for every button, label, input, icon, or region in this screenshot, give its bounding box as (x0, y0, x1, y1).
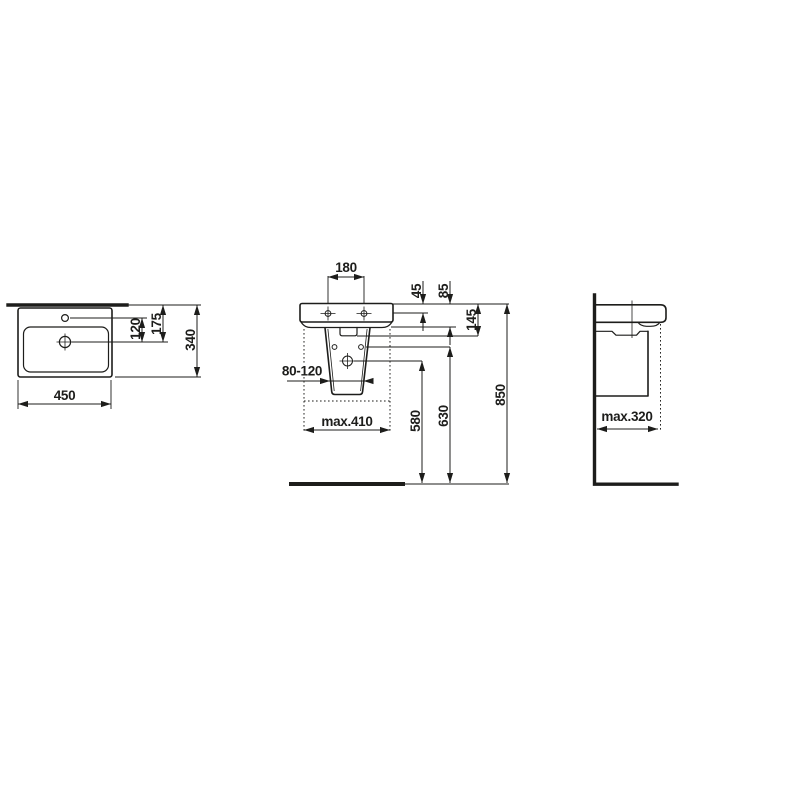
dim-label-175: 175 (149, 312, 164, 334)
dim-label-180: 180 (335, 260, 357, 275)
pedestal-hole-left (332, 345, 337, 350)
dim-label-580: 580 (408, 410, 423, 432)
dim-label-850: 850 (493, 384, 508, 406)
fixing-hole-left-cross (321, 307, 336, 321)
fixing-hole-right (357, 307, 372, 321)
dim-label-120: 120 (128, 318, 143, 340)
bowl-profile (596, 331, 648, 396)
basin-front-outline (300, 304, 393, 323)
dim-label-450: 450 (54, 388, 76, 403)
dim-label-45: 45 (409, 283, 424, 298)
dim-label-145: 145 (464, 308, 479, 330)
overflow-notch (340, 328, 357, 336)
wall-and-floor-line (595, 295, 678, 484)
pedestal-hole-right (359, 345, 364, 350)
basin-underside (301, 322, 392, 328)
overflow-channel-profile (596, 331, 648, 335)
drain-target-cross (340, 353, 356, 369)
drain-target (340, 353, 356, 369)
technical-drawing-page: 120 175 340 450 (0, 0, 800, 800)
dim-label-max410: max.410 (321, 414, 372, 429)
fixing-hole-right-cross (357, 307, 372, 321)
dim-label-630: 630 (436, 405, 451, 427)
dim-label-340: 340 (183, 329, 198, 351)
dim-label-max320: max.320 (601, 409, 652, 424)
front-view-extension-lines (328, 276, 509, 484)
front-view: 180 45 85 145 80-120 max.410 580 630 850 (281, 260, 509, 484)
dim-label-80-120: 80-120 (282, 364, 322, 379)
basin-bowl-plan (24, 327, 109, 372)
side-view: max.320 (595, 295, 678, 484)
dim-label-85: 85 (436, 283, 451, 298)
rim-profile (596, 305, 666, 323)
top-view-extension-lines (18, 305, 201, 409)
tap-hole (62, 315, 69, 322)
drain-crosshair (57, 334, 74, 351)
top-view: 120 175 340 450 (8, 305, 201, 409)
washbasin-technical-drawing: 120 175 340 450 (0, 0, 800, 800)
fixing-hole-left (321, 307, 336, 321)
